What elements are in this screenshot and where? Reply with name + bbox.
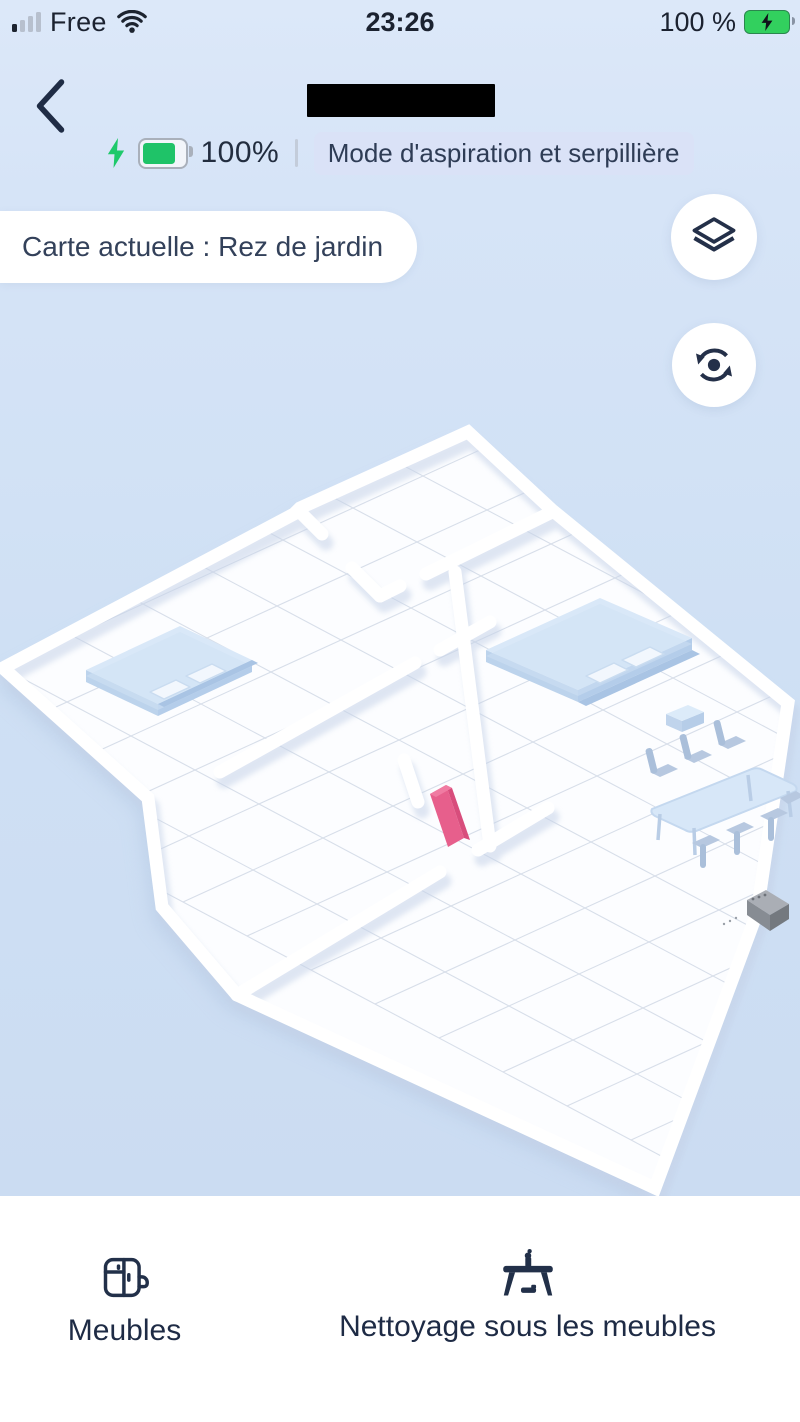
robot-battery-icon — [138, 138, 188, 169]
furniture-label: Meubles — [68, 1314, 181, 1348]
battery-charging-icon — [744, 10, 790, 34]
current-map-pill[interactable]: Carte actuelle : Rez de jardin — [0, 211, 417, 283]
cleaning-mode-badge: Mode d'aspiration et serpillière — [314, 132, 694, 175]
battery-percent-label: 100 % — [659, 7, 736, 38]
map-reset-button[interactable] — [672, 323, 756, 407]
floor-plan-map[interactable] — [0, 410, 800, 1200]
map-layers-button[interactable] — [671, 194, 757, 280]
divider — [295, 139, 298, 167]
chevron-left-icon — [28, 78, 72, 134]
current-map-label: Carte actuelle : Rez de jardin — [22, 231, 383, 263]
furniture-icon — [99, 1252, 151, 1304]
clean-under-furniture-icon — [500, 1248, 556, 1300]
robot-status-row: 100% Mode d'aspiration et serpillière — [0, 130, 800, 176]
rotate-reset-icon — [690, 341, 738, 389]
status-bar: Free 23:26 100 % — [0, 0, 800, 44]
bottom-bar: Meubles Nettoyage sous les meubles — [0, 1196, 800, 1422]
furniture-button[interactable]: Meubles — [37, 1252, 212, 1348]
layers-icon — [689, 212, 739, 262]
back-button[interactable] — [28, 78, 72, 134]
robot-battery-label: 100% — [200, 136, 279, 170]
device-title-redacted — [307, 84, 495, 117]
clean-under-furniture-label: Nettoyage sous les meubles — [339, 1310, 716, 1344]
clean-under-furniture-button[interactable]: Nettoyage sous les meubles — [300, 1248, 755, 1344]
charging-bolt-icon — [106, 138, 126, 168]
